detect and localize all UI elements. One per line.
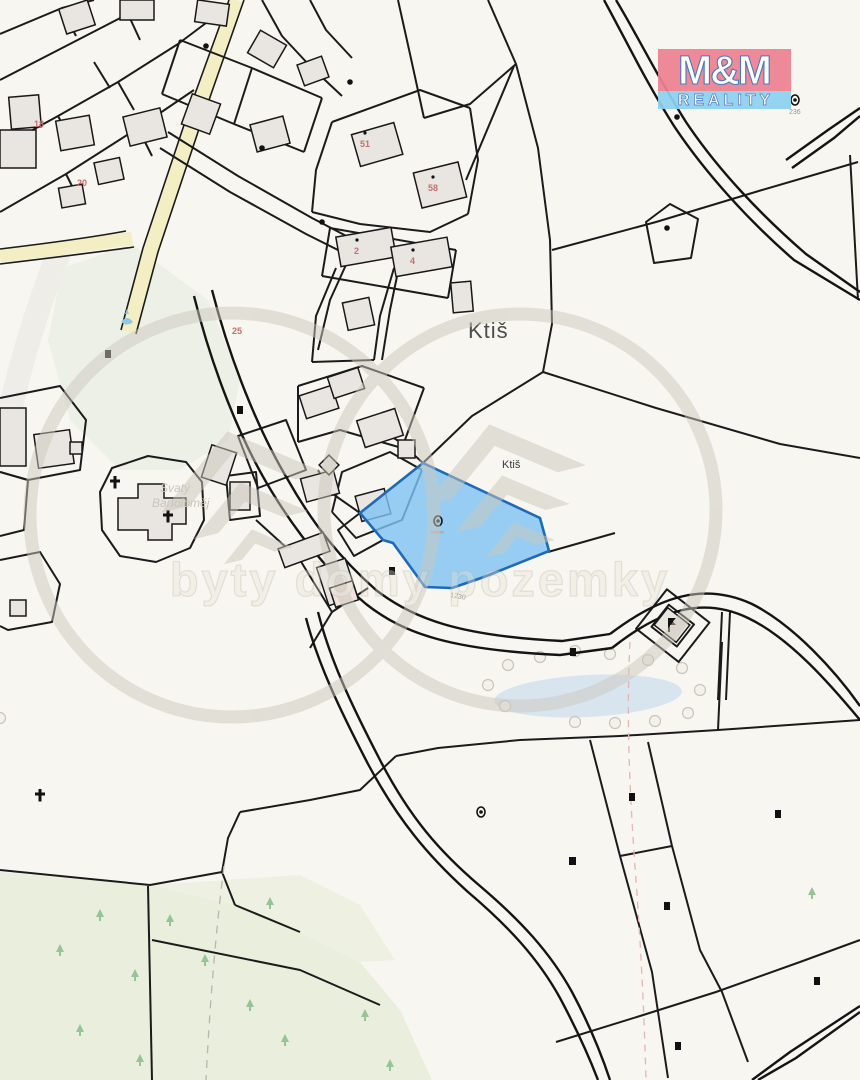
watermark-text: byty domy pozemky: [170, 553, 670, 606]
house-number: 20: [77, 178, 87, 188]
house-number: 18: [34, 119, 44, 129]
house-number: 58: [428, 183, 438, 193]
house-number: 4: [410, 256, 415, 266]
parcel-number: 236: [789, 109, 801, 116]
map-image[interactable]: 51 58 2 4 20 25 18 1230 236 Ktiš Ktiš Sv…: [0, 0, 860, 1080]
house-number: 51: [360, 139, 370, 149]
settlement-label-small: Ktiš: [502, 459, 521, 471]
mm-reality-logo: M&M REALITY: [658, 47, 791, 109]
house-number: 2: [354, 246, 359, 256]
cadastral-map[interactable]: 51 58 2 4 20 25 18 1230 236 Ktiš Ktiš Sv…: [0, 0, 860, 1080]
house-number: 25: [232, 326, 242, 336]
logo-title: M&M: [678, 47, 770, 93]
logo-subtitle: REALITY: [678, 92, 774, 109]
